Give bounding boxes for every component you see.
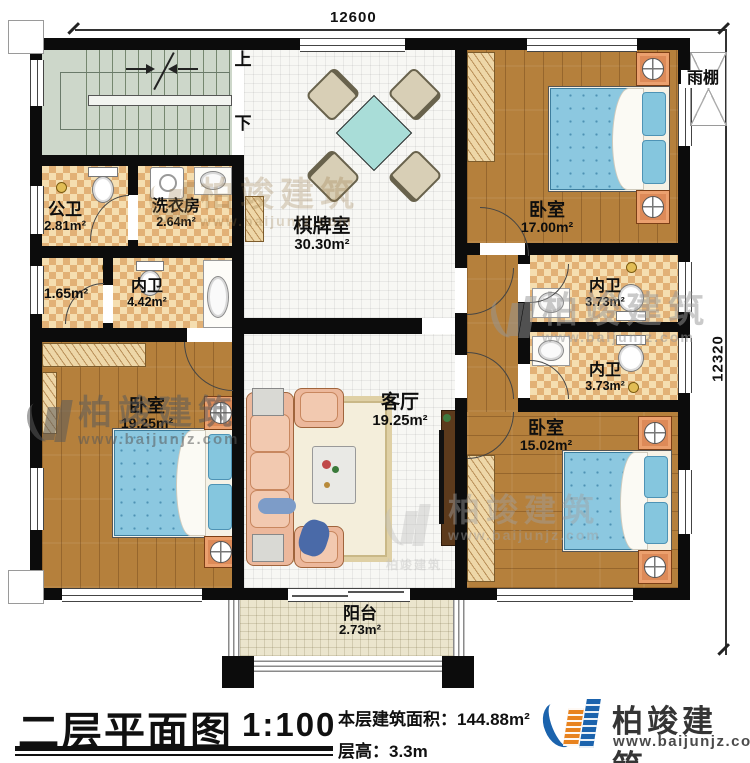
- nightstand: [636, 52, 670, 86]
- dimension-line-top: [75, 29, 725, 31]
- plant-icon: [443, 414, 451, 422]
- column: [442, 656, 474, 688]
- wall: [455, 313, 467, 355]
- side-table: [252, 388, 284, 416]
- wall: [518, 400, 690, 412]
- room-label-bedroom-tr: 卧室17.00m²: [512, 200, 582, 236]
- room-label-public-bath: 公卫2.81m²: [32, 200, 98, 234]
- room-label-closet: 1.65m²: [36, 286, 96, 302]
- stair-down-label: 下: [233, 114, 253, 133]
- brand-logo-icon: [150, 178, 192, 228]
- lamp-icon: [644, 556, 666, 578]
- room-label-ensuite: 内卫4.42m²: [118, 278, 176, 310]
- rain-canopy: [690, 52, 727, 126]
- dimension-right-value: 12320: [710, 329, 727, 389]
- pull-light-icon: [626, 262, 637, 273]
- pull-light-icon: [56, 182, 67, 193]
- side-table: [252, 534, 284, 562]
- stair-arrow-line-left: [126, 68, 146, 70]
- wall: [455, 38, 467, 268]
- stair-up-label: 上: [233, 50, 253, 69]
- pillow: [644, 502, 668, 544]
- flower-decor: [332, 466, 339, 473]
- wall: [128, 240, 138, 248]
- pillow: [644, 456, 668, 498]
- title-underline: [15, 746, 333, 751]
- brand-logo-icon: [28, 396, 70, 446]
- lamp-icon: [642, 196, 664, 218]
- brand-logo-icon: [386, 500, 428, 550]
- sliding-door-panel: [348, 591, 404, 593]
- pillow: [642, 92, 666, 136]
- room-label-bath-lower: 内卫3.73m²: [574, 362, 636, 394]
- flower-decor: [324, 482, 330, 488]
- wall: [30, 328, 187, 342]
- dimension-tick: [717, 643, 729, 655]
- stair-arrow-head-right: [168, 64, 177, 74]
- plan-scale: 1:100: [242, 706, 336, 744]
- watermark: 柏竣建筑 www.baijunjz.com: [448, 494, 601, 544]
- brand-name: 柏竣建筑: [612, 696, 750, 763]
- corner-marker: [8, 570, 44, 604]
- balcony-railing: [232, 658, 462, 672]
- wall: [518, 255, 530, 264]
- wall: [128, 166, 138, 195]
- nightstand: [636, 190, 670, 224]
- dimension-top-value: 12600: [330, 9, 377, 26]
- pillow: [208, 484, 232, 530]
- watermark: 柏竣建筑 www.baijunjz.com: [28, 396, 239, 450]
- lamp-icon: [644, 422, 666, 444]
- canopy-label: 雨棚: [681, 70, 725, 88]
- window: [30, 60, 44, 106]
- stair-stringer: [88, 95, 232, 106]
- balcony-railing: [228, 598, 240, 656]
- window: [497, 588, 633, 602]
- brand-logo-icon: [492, 292, 534, 342]
- coffee-table: [312, 446, 356, 504]
- stair-arrow-head-left: [146, 64, 155, 74]
- brand-logo-icon: [544, 694, 608, 754]
- lamp-icon: [642, 58, 664, 80]
- nightstand: [638, 416, 672, 450]
- stair-arrow-line-right: [178, 68, 198, 70]
- room-label-living-room: 客厅19.25m²: [360, 392, 440, 430]
- floor-height-label: 层高：3.3m: [338, 737, 428, 762]
- person-figure: [258, 498, 296, 514]
- sliding-door: [288, 588, 410, 602]
- sofa-cushion: [250, 452, 290, 490]
- wall: [103, 258, 113, 285]
- armchair-cushion: [300, 392, 338, 422]
- window: [62, 588, 202, 602]
- column: [222, 656, 254, 688]
- window: [678, 338, 692, 393]
- nightstand: [638, 550, 672, 584]
- wall: [525, 243, 690, 255]
- wardrobe: [42, 343, 146, 367]
- floor-plan-canvas: 公卫2.81m² 洗衣房2.64m² 1.65m² 内卫4.42m² 棋牌室30…: [0, 0, 750, 763]
- brand-url: www.baijunjz.com: [613, 733, 750, 750]
- floor-area-label: 本层建筑面积：144.88m²: [338, 705, 530, 730]
- title-underline-thin: [15, 754, 333, 756]
- window: [30, 468, 44, 530]
- wall: [30, 155, 244, 166]
- corner-marker: [8, 20, 44, 54]
- sofa-cushion: [250, 414, 290, 452]
- wall: [455, 243, 480, 255]
- watermark: 柏竣建筑: [386, 500, 442, 574]
- bed-blanket: [612, 88, 644, 190]
- wall: [232, 318, 422, 334]
- wall: [103, 323, 113, 330]
- lamp-icon: [210, 541, 232, 563]
- window: [527, 38, 637, 52]
- watermark: 柏竣建筑 www.baijunjz.com: [150, 178, 360, 230]
- wardrobe: [467, 52, 495, 162]
- room-label-balcony: 阳台2.73m²: [328, 604, 392, 638]
- bathtub-icon: [207, 276, 229, 318]
- room-label-bedroom-br: 卧室15.02m²: [511, 418, 581, 454]
- flower-decor: [322, 460, 331, 469]
- window: [678, 470, 692, 534]
- window: [300, 38, 405, 52]
- balcony-railing: [453, 598, 465, 656]
- pillow: [642, 140, 666, 184]
- watermark: 柏竣建筑 www.baijunjz.com: [492, 292, 710, 346]
- sliding-door-panel: [292, 595, 348, 597]
